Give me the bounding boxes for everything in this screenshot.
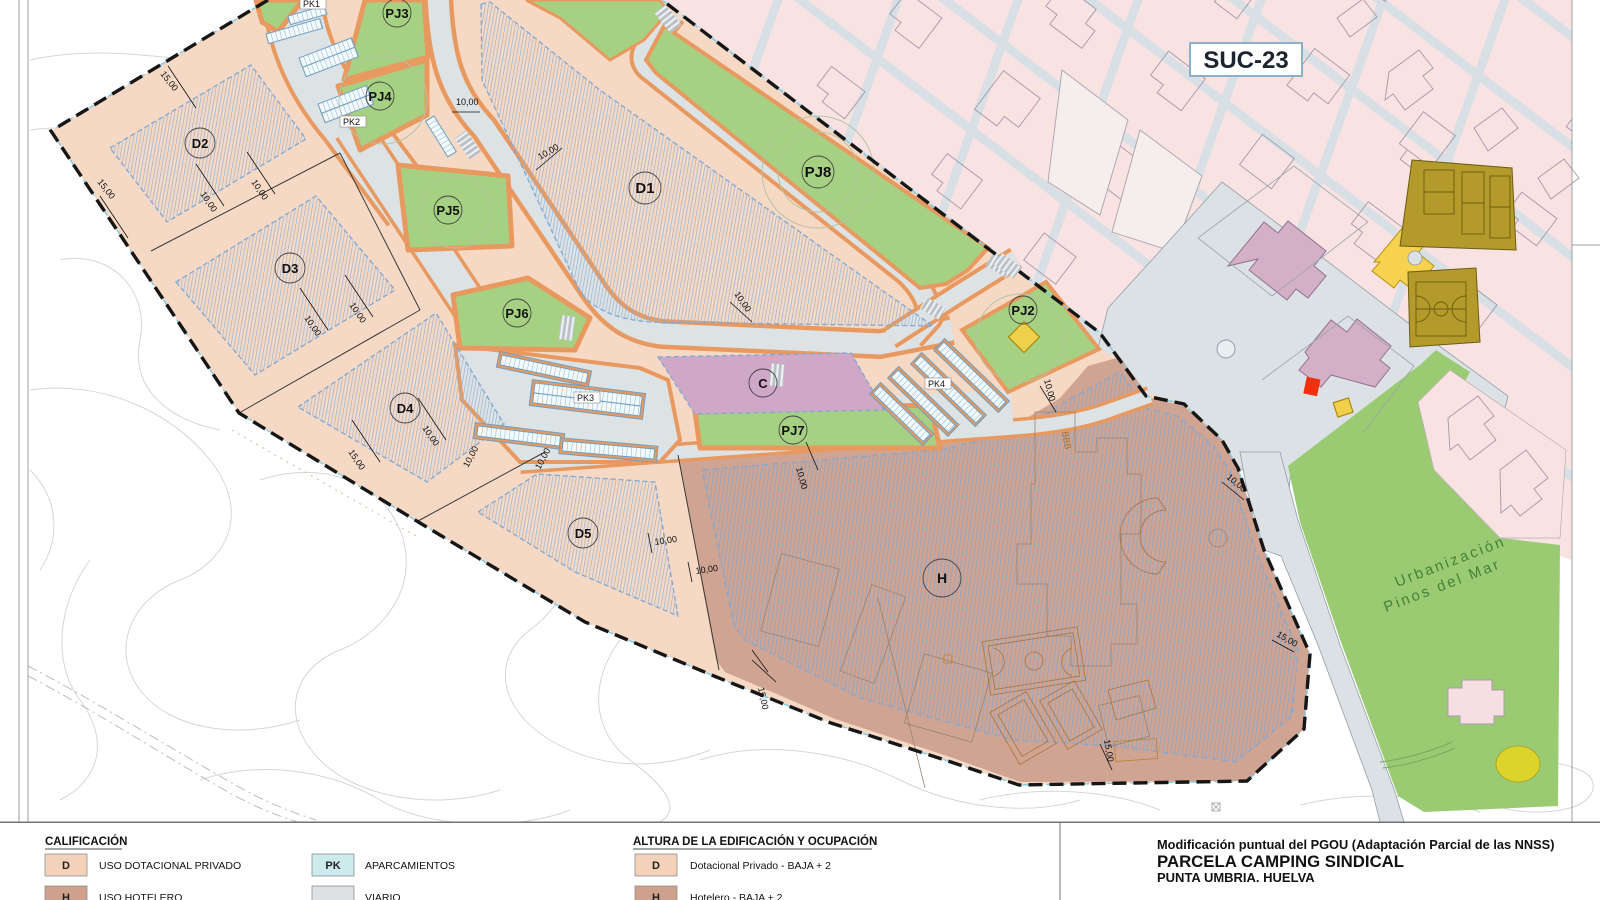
svg-text:SUC-23: SUC-23 — [1203, 47, 1288, 74]
svg-text:H: H — [937, 570, 947, 586]
svg-text:PJ6: PJ6 — [505, 306, 528, 321]
svg-text:PJ7: PJ7 — [781, 423, 804, 438]
svg-text:PJ8: PJ8 — [805, 164, 832, 181]
svg-text:PK4: PK4 — [928, 379, 945, 389]
svg-text:PK: PK — [325, 860, 340, 872]
svg-text:D2: D2 — [192, 136, 209, 151]
svg-text:USO DOTACIONAL PRIVADO: USO DOTACIONAL PRIVADO — [99, 860, 241, 872]
svg-text:10,00: 10,00 — [456, 97, 479, 107]
svg-text:PJ2: PJ2 — [1011, 303, 1034, 318]
svg-text:D5: D5 — [575, 526, 592, 541]
svg-text:PJ3: PJ3 — [385, 6, 408, 21]
svg-text:PUNTA UMBRIA. HUELVA: PUNTA UMBRIA. HUELVA — [1157, 870, 1315, 885]
svg-text:PARCELA CAMPING SINDICAL: PARCELA CAMPING SINDICAL — [1157, 852, 1404, 871]
svg-text:H: H — [652, 892, 660, 900]
svg-text:H: H — [62, 892, 70, 900]
svg-text:Modificación puntual del PGOU: Modificación puntual del PGOU (Adaptació… — [1157, 837, 1554, 852]
svg-text:D: D — [652, 860, 660, 872]
svg-text:C: C — [758, 376, 768, 391]
svg-text:Dotacional Privado - BAJA +: Dotacional Privado - BAJA + 2 — [690, 860, 831, 872]
svg-text:PJ4: PJ4 — [368, 89, 392, 104]
svg-text:VIARIO: VIARIO — [365, 892, 401, 900]
svg-text:CALIFICACIÓN: CALIFICACIÓN — [45, 835, 127, 848]
svg-text:USO HOTELERO: USO HOTELERO — [99, 892, 182, 900]
svg-text:Hotelero - BAJA + 2: Hotelero - BAJA + 2 — [690, 892, 783, 900]
svg-text:D: D — [62, 860, 70, 872]
svg-text:APARCAMIENTOS: APARCAMIENTOS — [365, 860, 455, 872]
svg-text:D4: D4 — [397, 401, 414, 416]
svg-text:PK2: PK2 — [343, 117, 360, 127]
svg-text:D1: D1 — [635, 180, 654, 197]
svg-text:D3: D3 — [282, 261, 299, 276]
svg-text:PJ5: PJ5 — [436, 203, 459, 218]
svg-text:PK1: PK1 — [303, 0, 320, 9]
svg-text:ALTURA DE LA EDIFICACIÓN Y OCU: ALTURA DE LA EDIFICACIÓN Y OCUPACIÓN — [633, 835, 877, 848]
svg-text:PK3: PK3 — [577, 393, 594, 403]
